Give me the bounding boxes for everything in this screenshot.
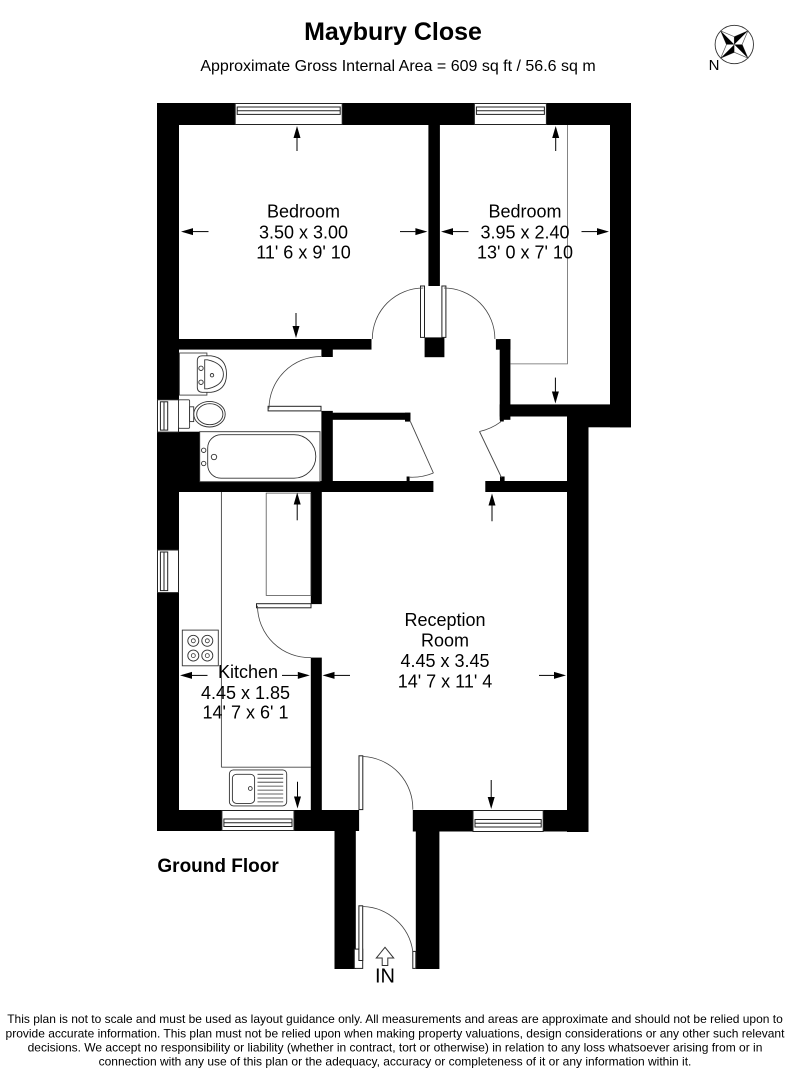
svg-text:14' 7 x 6' 1: 14' 7 x 6' 1 — [203, 703, 289, 723]
svg-text:connection with any use of thi: connection with any use of this plan or … — [99, 1055, 692, 1069]
svg-text:Ground Floor: Ground Floor — [157, 856, 279, 877]
svg-text:13' 0 x 7' 10: 13' 0 x 7' 10 — [477, 243, 573, 263]
svg-text:4.45 x 3.45: 4.45 x 3.45 — [400, 651, 489, 671]
svg-text:This plan is not to scale and: This plan is not to scale and must be us… — [7, 1012, 783, 1026]
svg-text:4.45 x 1.85: 4.45 x 1.85 — [201, 683, 290, 703]
svg-text:N: N — [709, 57, 720, 74]
svg-text:IN: IN — [375, 966, 395, 988]
svg-text:Bedroom: Bedroom — [267, 202, 340, 222]
svg-text:14' 7 x 11' 4: 14' 7 x 11' 4 — [398, 672, 493, 692]
svg-text:Room: Room — [421, 631, 469, 651]
svg-text:decisions. We accept no respon: decisions. We accept no responsibility o… — [28, 1041, 763, 1055]
svg-text:provide accurate information.: provide accurate information. This plan … — [6, 1026, 786, 1040]
svg-text:Reception: Reception — [404, 610, 485, 630]
svg-text:3.95 x 2.40: 3.95 x 2.40 — [480, 223, 569, 243]
svg-text:11' 6 x 9' 10: 11' 6 x 9' 10 — [256, 243, 351, 263]
svg-text:Maybury Close: Maybury Close — [304, 18, 482, 46]
svg-text:3.50 x 3.00: 3.50 x 3.00 — [259, 223, 348, 243]
svg-text:Approximate Gross Internal Are: Approximate Gross Internal Area = 609 sq… — [200, 58, 595, 75]
svg-text:Kitchen: Kitchen — [218, 662, 278, 682]
svg-text:Bedroom: Bedroom — [488, 202, 561, 222]
